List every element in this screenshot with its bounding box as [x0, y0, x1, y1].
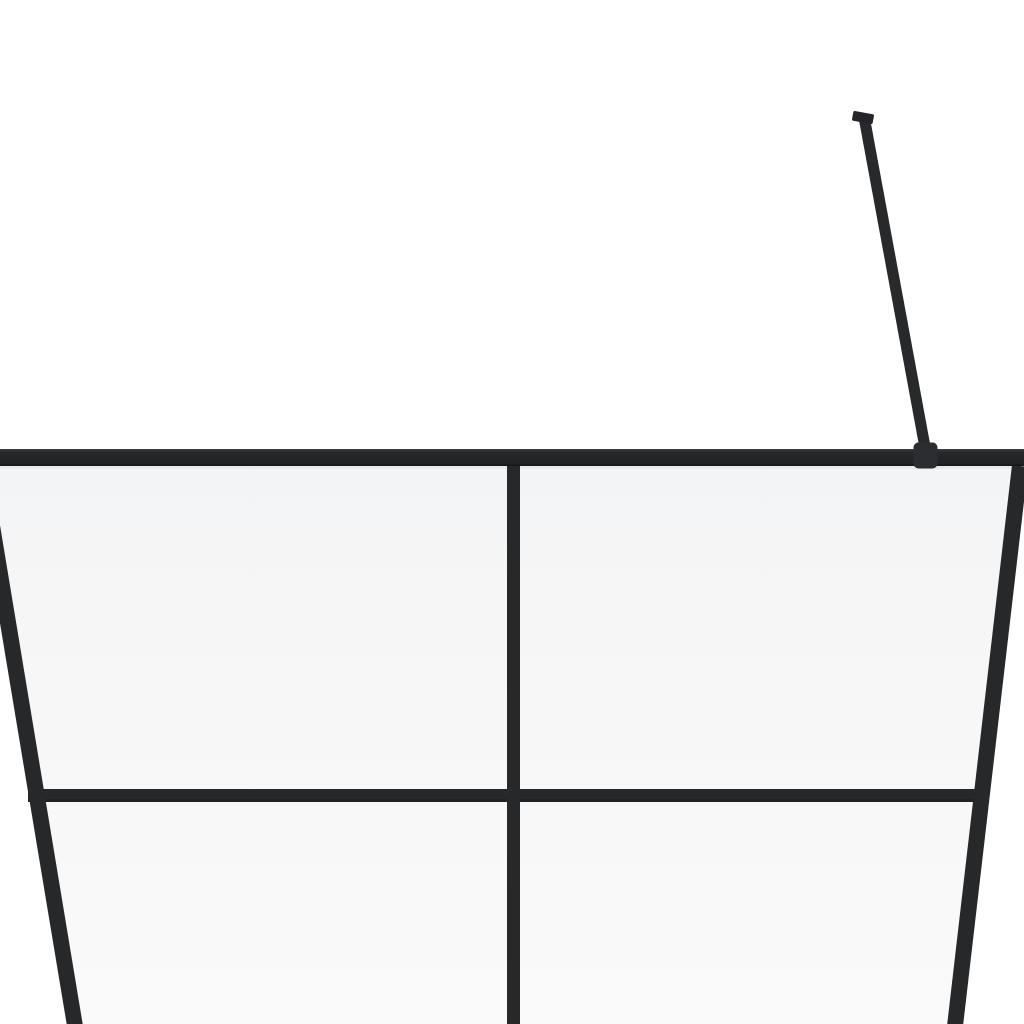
shower-wall-render [0, 0, 1024, 1024]
top-rail [0, 449, 1024, 466]
center-mullion [507, 463, 520, 1024]
product-image-shower-wall [0, 0, 1024, 1024]
support-arm-bracket [914, 443, 938, 469]
